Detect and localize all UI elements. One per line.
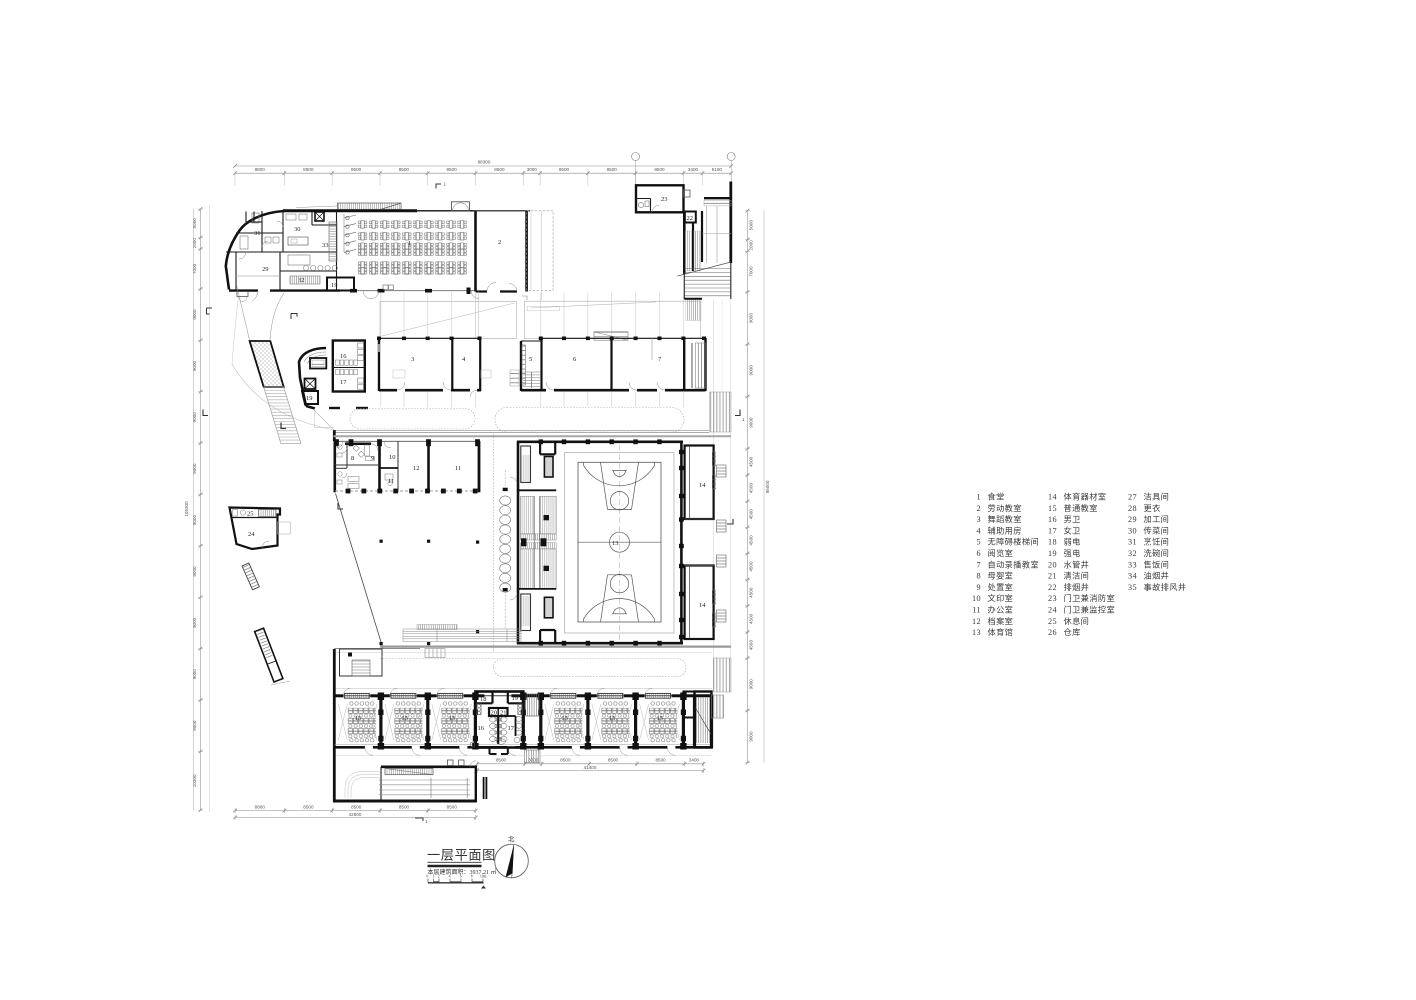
svg-text:9000: 9000 bbox=[192, 309, 197, 320]
svg-text:4: 4 bbox=[449, 875, 451, 879]
svg-text:9000: 9000 bbox=[749, 313, 754, 324]
svg-text:27: 27 bbox=[1128, 493, 1137, 502]
svg-text:9000: 9000 bbox=[192, 412, 197, 423]
svg-text:15: 15 bbox=[401, 715, 408, 722]
svg-text:3000: 3000 bbox=[527, 167, 538, 172]
svg-text:8500: 8500 bbox=[496, 758, 507, 763]
svg-text:17: 17 bbox=[340, 379, 347, 386]
svg-text:7000: 7000 bbox=[192, 263, 197, 274]
svg-text:15: 15 bbox=[1048, 504, 1057, 513]
svg-text:21: 21 bbox=[500, 710, 507, 717]
svg-text:8500: 8500 bbox=[303, 804, 314, 809]
svg-text:8500: 8500 bbox=[560, 758, 571, 763]
svg-text:6: 6 bbox=[460, 875, 462, 879]
svg-text:15: 15 bbox=[449, 715, 456, 722]
svg-text:26: 26 bbox=[1048, 628, 1057, 637]
svg-text:88300: 88300 bbox=[478, 160, 491, 165]
svg-text:24: 24 bbox=[248, 531, 255, 538]
svg-text:5100: 5100 bbox=[712, 167, 723, 172]
svg-text:4500: 4500 bbox=[749, 509, 754, 520]
svg-text:8500: 8500 bbox=[655, 758, 666, 763]
svg-text:22: 22 bbox=[1048, 583, 1057, 592]
svg-text:8500: 8500 bbox=[559, 167, 570, 172]
svg-text:17: 17 bbox=[1048, 526, 1057, 535]
svg-text:9000: 9000 bbox=[192, 515, 197, 526]
svg-text:3400: 3400 bbox=[689, 758, 700, 763]
svg-text:排烟井: 排烟井 bbox=[1064, 582, 1090, 592]
svg-text:35: 35 bbox=[1128, 583, 1137, 592]
svg-text:9000: 9000 bbox=[749, 679, 754, 690]
svg-text:31: 31 bbox=[254, 230, 261, 237]
svg-text:5: 5 bbox=[977, 538, 982, 547]
svg-text:事故排风井: 事故排风井 bbox=[1144, 582, 1187, 592]
svg-text:15: 15 bbox=[355, 715, 362, 722]
svg-text:8500: 8500 bbox=[447, 804, 458, 809]
svg-text:11: 11 bbox=[972, 606, 981, 615]
svg-text:32: 32 bbox=[1128, 549, 1137, 558]
svg-text:清洁间: 清洁间 bbox=[1064, 571, 1090, 581]
svg-text:95000: 95000 bbox=[765, 480, 770, 493]
svg-text:4500: 4500 bbox=[749, 535, 754, 546]
svg-text:一层平面图: 一层平面图 bbox=[427, 848, 496, 863]
svg-text:更衣: 更衣 bbox=[1144, 503, 1161, 513]
svg-text:4500: 4500 bbox=[749, 613, 754, 624]
svg-text:20: 20 bbox=[491, 710, 498, 717]
svg-text:1: 1 bbox=[408, 240, 411, 247]
svg-text:1: 1 bbox=[425, 819, 428, 824]
svg-text:阅览室: 阅览室 bbox=[988, 548, 1014, 558]
svg-text:11: 11 bbox=[388, 478, 394, 485]
svg-text:2000: 2000 bbox=[192, 238, 197, 249]
svg-text:3: 3 bbox=[977, 515, 982, 524]
svg-text:10: 10 bbox=[972, 594, 981, 603]
svg-text:29: 29 bbox=[1128, 515, 1137, 524]
svg-text:41400: 41400 bbox=[584, 765, 597, 770]
svg-text:14: 14 bbox=[1048, 493, 1057, 502]
svg-text:8500: 8500 bbox=[399, 804, 410, 809]
svg-text:19: 19 bbox=[512, 695, 519, 702]
svg-text:4: 4 bbox=[977, 526, 982, 535]
svg-text:仓库: 仓库 bbox=[1064, 627, 1081, 637]
svg-text:10m: 10m bbox=[480, 875, 487, 879]
svg-text:体育器材室: 体育器材室 bbox=[1064, 492, 1107, 502]
svg-text:9000: 9000 bbox=[749, 417, 754, 428]
svg-text:33: 33 bbox=[322, 242, 329, 249]
svg-text:32: 32 bbox=[298, 277, 305, 284]
svg-text:14: 14 bbox=[699, 482, 706, 489]
svg-text:42800: 42800 bbox=[349, 812, 362, 817]
svg-text:8800: 8800 bbox=[255, 167, 266, 172]
svg-text:油烟井: 油烟井 bbox=[1144, 571, 1170, 581]
svg-text:食堂: 食堂 bbox=[988, 492, 1005, 502]
svg-text:劳动教室: 劳动教室 bbox=[988, 503, 1022, 513]
svg-text:20: 20 bbox=[1048, 560, 1057, 569]
svg-text:25: 25 bbox=[1048, 617, 1057, 626]
svg-text:11: 11 bbox=[455, 465, 461, 472]
svg-text:9000: 9000 bbox=[192, 617, 197, 628]
svg-text:12: 12 bbox=[413, 465, 420, 472]
svg-text:8: 8 bbox=[471, 875, 473, 879]
svg-text:9000: 9000 bbox=[749, 365, 754, 376]
svg-text:4500: 4500 bbox=[749, 456, 754, 467]
svg-text:3000: 3000 bbox=[528, 758, 539, 763]
svg-text:12: 12 bbox=[972, 617, 981, 626]
svg-text:33: 33 bbox=[1128, 560, 1137, 569]
svg-text:办公室: 办公室 bbox=[988, 605, 1014, 615]
svg-text:洁具间: 洁具间 bbox=[1144, 492, 1170, 502]
svg-text:8800: 8800 bbox=[255, 804, 266, 809]
svg-text:21: 21 bbox=[1048, 572, 1057, 581]
svg-text:烹饪间: 烹饪间 bbox=[1144, 537, 1170, 547]
svg-text:母婴室: 母婴室 bbox=[988, 571, 1014, 581]
svg-text:8500: 8500 bbox=[608, 758, 619, 763]
svg-text:8500: 8500 bbox=[351, 167, 362, 172]
svg-text:16: 16 bbox=[1048, 515, 1057, 524]
svg-text:18: 18 bbox=[1048, 538, 1057, 547]
svg-text:9000: 9000 bbox=[192, 720, 197, 731]
svg-text:4500: 4500 bbox=[749, 587, 754, 598]
svg-text:4500: 4500 bbox=[749, 640, 754, 651]
svg-text:8500: 8500 bbox=[351, 804, 362, 809]
svg-text:处置室: 处置室 bbox=[988, 582, 1014, 592]
svg-text:30: 30 bbox=[294, 226, 301, 233]
svg-text:1: 1 bbox=[977, 493, 982, 502]
svg-text:24: 24 bbox=[1048, 606, 1057, 615]
svg-text:2000: 2000 bbox=[749, 240, 754, 251]
svg-text:舞蹈教室: 舞蹈教室 bbox=[988, 514, 1022, 524]
svg-text:30: 30 bbox=[1128, 526, 1137, 535]
svg-text:19: 19 bbox=[1048, 549, 1057, 558]
svg-text:0: 0 bbox=[427, 875, 429, 879]
svg-text:文印室: 文印室 bbox=[988, 593, 1014, 603]
svg-text:16: 16 bbox=[340, 353, 347, 360]
svg-text:16: 16 bbox=[478, 725, 485, 732]
svg-text:体育馆: 体育馆 bbox=[988, 627, 1014, 637]
svg-text:22: 22 bbox=[687, 215, 694, 222]
svg-text:北: 北 bbox=[508, 835, 515, 843]
svg-text:辅助用房: 辅助用房 bbox=[988, 525, 1022, 535]
svg-text:8: 8 bbox=[977, 572, 982, 581]
svg-text:5000: 5000 bbox=[192, 218, 197, 229]
svg-text:25: 25 bbox=[247, 511, 254, 518]
svg-text:5000: 5000 bbox=[749, 220, 754, 231]
svg-text:31: 31 bbox=[1128, 538, 1137, 547]
svg-text:14: 14 bbox=[699, 602, 706, 609]
svg-text:3: 3 bbox=[411, 356, 414, 363]
svg-text:13: 13 bbox=[612, 540, 619, 547]
svg-text:自动录播教室: 自动录播教室 bbox=[988, 559, 1040, 569]
svg-text:普通教室: 普通教室 bbox=[1064, 503, 1098, 513]
svg-text:10300: 10300 bbox=[192, 774, 197, 787]
svg-text:34: 34 bbox=[1128, 572, 1137, 581]
svg-text:8500: 8500 bbox=[607, 167, 618, 172]
svg-text:8500: 8500 bbox=[494, 167, 505, 172]
svg-text:19: 19 bbox=[306, 395, 313, 402]
svg-text:8: 8 bbox=[351, 455, 354, 462]
svg-text:23: 23 bbox=[661, 196, 668, 203]
svg-text:7: 7 bbox=[977, 560, 982, 569]
svg-text:档案室: 档案室 bbox=[988, 616, 1014, 626]
svg-text:105300: 105300 bbox=[184, 501, 189, 517]
svg-text:无障碍楼梯间: 无障碍楼梯间 bbox=[988, 537, 1040, 547]
svg-text:传菜间: 传菜间 bbox=[1144, 525, 1170, 535]
svg-text:女卫: 女卫 bbox=[1064, 525, 1081, 535]
svg-text:2: 2 bbox=[977, 504, 982, 513]
svg-text:门卫兼消防室: 门卫兼消防室 bbox=[1064, 593, 1116, 603]
svg-text:8500: 8500 bbox=[303, 167, 314, 172]
svg-text:男卫: 男卫 bbox=[1064, 515, 1081, 524]
svg-text:门卫兼监控室: 门卫兼监控室 bbox=[1064, 605, 1116, 615]
svg-text:8500: 8500 bbox=[446, 167, 457, 172]
svg-text:1: 1 bbox=[742, 417, 745, 422]
svg-text:1: 1 bbox=[444, 182, 447, 187]
svg-text:18: 18 bbox=[480, 696, 487, 703]
svg-text:洗碗间: 洗碗间 bbox=[1144, 548, 1170, 558]
svg-text:15: 15 bbox=[609, 715, 616, 722]
svg-text:9: 9 bbox=[977, 583, 982, 592]
svg-text:7000: 7000 bbox=[749, 266, 754, 277]
svg-text:19: 19 bbox=[331, 282, 338, 289]
svg-text:5: 5 bbox=[529, 356, 532, 363]
svg-text:2: 2 bbox=[438, 875, 440, 879]
svg-text:售饭间: 售饭间 bbox=[1144, 559, 1170, 569]
svg-text:17: 17 bbox=[508, 725, 515, 732]
svg-text:23: 23 bbox=[1048, 594, 1057, 603]
svg-text:9000: 9000 bbox=[749, 731, 754, 742]
svg-text:6: 6 bbox=[977, 549, 982, 558]
svg-text:4500: 4500 bbox=[749, 561, 754, 572]
svg-text:4500: 4500 bbox=[749, 483, 754, 494]
svg-text:8500: 8500 bbox=[654, 167, 665, 172]
svg-text:9: 9 bbox=[371, 455, 374, 462]
svg-text:15: 15 bbox=[657, 715, 664, 722]
svg-text:15: 15 bbox=[561, 715, 568, 722]
svg-text:2: 2 bbox=[498, 239, 501, 246]
svg-text:9000: 9000 bbox=[192, 566, 197, 577]
svg-text:9000: 9000 bbox=[192, 463, 197, 474]
svg-text:3400: 3400 bbox=[688, 167, 699, 172]
svg-text:28: 28 bbox=[1128, 504, 1137, 513]
svg-text:13: 13 bbox=[972, 628, 981, 637]
svg-text:9000: 9000 bbox=[192, 360, 197, 371]
svg-text:8500: 8500 bbox=[399, 167, 410, 172]
svg-text:弱电: 弱电 bbox=[1064, 537, 1081, 547]
svg-text:加工间: 加工间 bbox=[1144, 514, 1170, 524]
svg-text:1: 1 bbox=[432, 875, 434, 879]
svg-text:10: 10 bbox=[389, 454, 396, 461]
svg-text:9000: 9000 bbox=[192, 669, 197, 680]
svg-text:强电: 强电 bbox=[1064, 548, 1081, 558]
svg-text:29: 29 bbox=[262, 266, 269, 273]
svg-text:休息间: 休息间 bbox=[1064, 616, 1090, 626]
svg-text:水管井: 水管井 bbox=[1064, 559, 1090, 569]
